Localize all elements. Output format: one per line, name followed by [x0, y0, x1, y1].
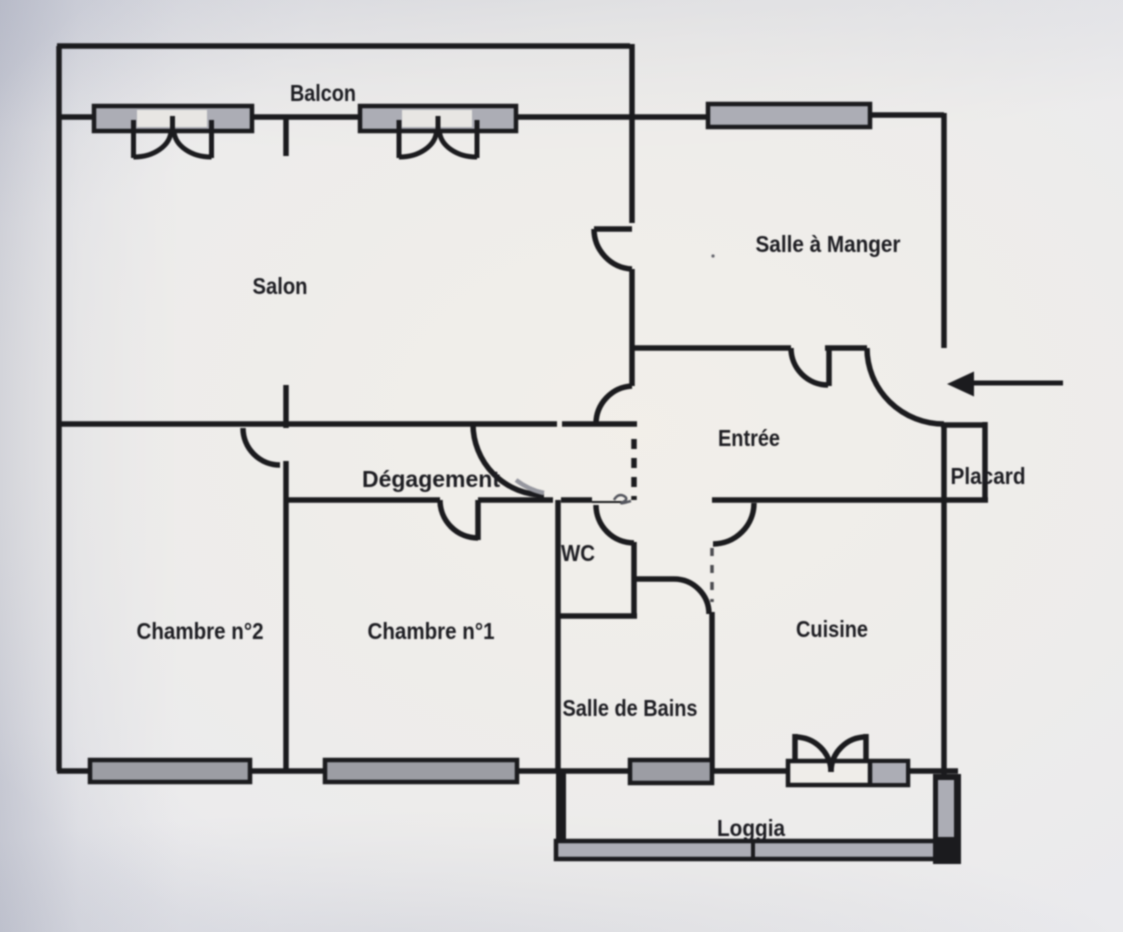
svg-text:Salle à Manger: Salle à Manger	[756, 231, 901, 257]
svg-text:Salon: Salon	[253, 273, 308, 299]
svg-text:Salle de Bains: Salle de Bains	[563, 695, 698, 721]
svg-text:Dégagement: Dégagement	[362, 466, 500, 492]
svg-text:Chambre n°2: Chambre n°2	[137, 618, 264, 644]
svg-text:WC: WC	[561, 540, 595, 566]
svg-text:Placard: Placard	[951, 463, 1026, 489]
svg-text:Entrée: Entrée	[718, 425, 780, 451]
svg-text:Balcon: Balcon	[290, 80, 356, 106]
svg-text:Loggia: Loggia	[717, 815, 785, 841]
svg-text:Cuisine: Cuisine	[796, 616, 868, 642]
svg-text:Chambre n°1: Chambre n°1	[368, 618, 495, 644]
